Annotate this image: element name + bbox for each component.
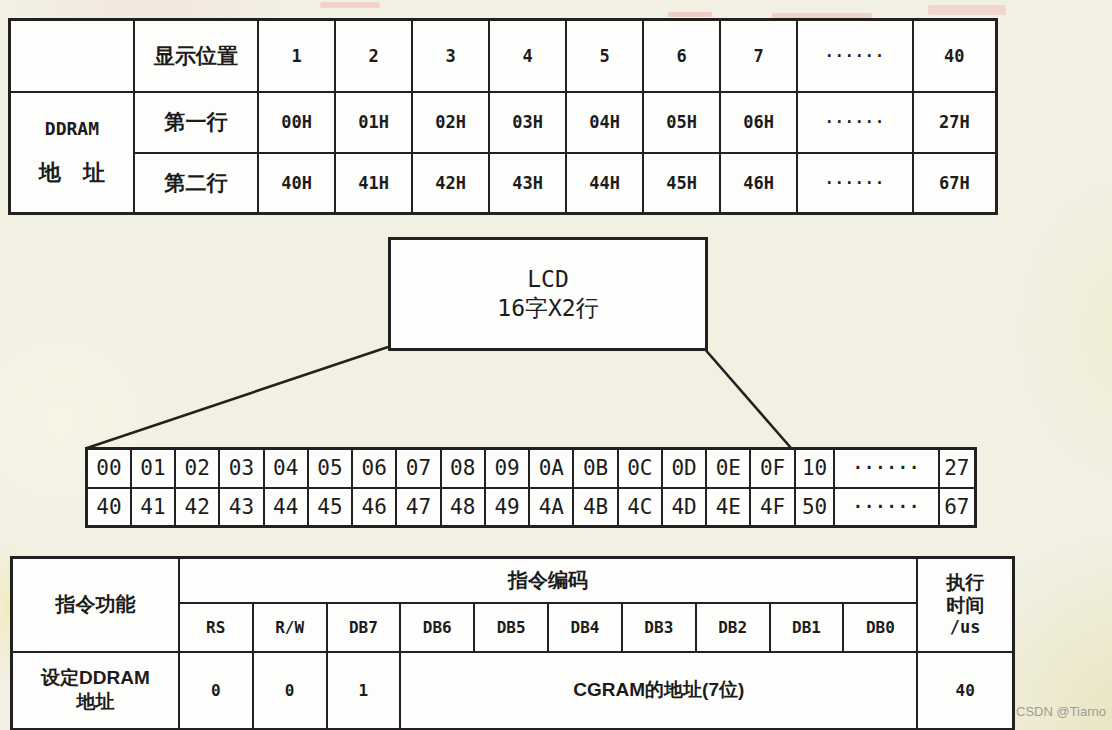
- map-cell: 00: [87, 449, 131, 488]
- map-cell: 0D: [662, 449, 706, 488]
- address-cell: 04H: [566, 92, 643, 153]
- map-cell: 49: [485, 488, 529, 527]
- map-cell: 4A: [529, 488, 573, 527]
- position-cell: 1: [258, 20, 335, 92]
- bit-header-db7: DB7: [327, 603, 401, 652]
- map-cell: 01: [131, 449, 175, 488]
- execution-time-unit: /us: [918, 617, 1012, 637]
- rw-value: 0: [253, 652, 327, 730]
- ellipsis-cell: ······: [797, 92, 912, 153]
- function-line2: 地址: [13, 690, 178, 715]
- display-position-header: 显示位置: [134, 20, 258, 92]
- left-connector-line: [87, 347, 388, 448]
- bit-header-rw: R/W: [253, 603, 327, 652]
- address-cell: 02H: [412, 92, 489, 153]
- function-line1: 设定DDRAM: [13, 666, 178, 691]
- map-cell: 06: [352, 449, 396, 488]
- right-connector-line: [703, 347, 791, 448]
- bit-header-db5: DB5: [474, 603, 548, 652]
- bit-header-db0: DB0: [843, 603, 917, 652]
- map-cell: 09: [485, 449, 529, 488]
- map-cell: 0E: [706, 449, 750, 488]
- map-cell: 03: [219, 449, 263, 488]
- execution-time-value: 40: [917, 652, 1013, 730]
- address-span-cell: CGRAM的地址(7位): [400, 652, 917, 730]
- map-cell: 02: [175, 449, 219, 488]
- instruction-function-cell: 设定DDRAM 地址: [12, 652, 179, 730]
- position-cell: 5: [566, 20, 643, 92]
- address-cell: 46H: [720, 153, 797, 214]
- map-cell: 45: [308, 488, 352, 527]
- map-cell: 4B: [573, 488, 617, 527]
- position-cell: 3: [412, 20, 489, 92]
- ddram-address-label-cell: DDRAM 地 址: [10, 92, 134, 214]
- ellipsis-cell: ······: [834, 449, 938, 488]
- lcd-box-subtitle: 16字X2行: [497, 294, 598, 323]
- address-cell: 40H: [258, 153, 335, 214]
- bit-header-rs: RS: [179, 603, 253, 652]
- rs-value: 0: [179, 652, 253, 730]
- address-cell: 67H: [913, 153, 997, 214]
- map-cell: 08: [441, 449, 485, 488]
- map-cell: 48: [441, 488, 485, 527]
- map-cell: 4D: [662, 488, 706, 527]
- address-cell: 03H: [489, 92, 566, 153]
- ellipsis-cell: ······: [834, 488, 938, 527]
- execution-time-header: 执行 时间 /us: [917, 558, 1013, 652]
- map-cell: 07: [396, 449, 440, 488]
- map-cell: 40: [87, 488, 131, 527]
- lcd-box-title: LCD: [527, 265, 569, 294]
- map-cell: 46: [352, 488, 396, 527]
- map-cell: 44: [264, 488, 308, 527]
- row1-label: 第一行: [134, 92, 258, 153]
- ddram-label: DDRAM: [11, 120, 133, 138]
- red-annotation-mark: [668, 12, 712, 17]
- map-cell: 05: [308, 449, 352, 488]
- map-cell: 42: [175, 488, 219, 527]
- map-cell: 43: [219, 488, 263, 527]
- map-cell: 47: [396, 488, 440, 527]
- ddram-address-table: 显示位置 1 2 3 4 5 6 7 ······ 40 DDRAM 地 址 第…: [8, 18, 998, 215]
- address-cell: 44H: [566, 153, 643, 214]
- map-cell: 0F: [750, 449, 794, 488]
- address-cell: 27H: [913, 92, 997, 153]
- position-cell: 2: [335, 20, 412, 92]
- position-cell: 40: [913, 20, 997, 92]
- bit-header-db6: DB6: [400, 603, 474, 652]
- map-cell: 41: [131, 488, 175, 527]
- map-cell: 67: [939, 488, 976, 527]
- map-cell: 10: [795, 449, 835, 488]
- map-cell: 0A: [529, 449, 573, 488]
- red-annotation-mark: [320, 2, 380, 8]
- ellipsis-cell: ······: [797, 20, 912, 92]
- address-cell: 00H: [258, 92, 335, 153]
- background-petal-blob: [1020, 180, 1112, 480]
- lcd-module-box: LCD 16字X2行: [388, 237, 708, 351]
- execution-time-line1: 执行: [918, 572, 1012, 595]
- bit-header-db4: DB4: [548, 603, 622, 652]
- map-cell: 27: [939, 449, 976, 488]
- address-cell: 06H: [720, 92, 797, 153]
- row2-label: 第二行: [134, 153, 258, 214]
- lcd-ddram-address-slide: 861 显示位置 1 2 3 4 5 6 7 ······ 40 DDRAM 地…: [0, 0, 1112, 730]
- map-cell: 0B: [573, 449, 617, 488]
- address-cell: 01H: [335, 92, 412, 153]
- map-cell: 4C: [618, 488, 662, 527]
- execution-time-line2: 时间: [918, 595, 1012, 618]
- address-label: 地 址: [11, 162, 133, 184]
- position-cell: 6: [643, 20, 720, 92]
- map-cell: 50: [795, 488, 835, 527]
- lcd-address-map: 00 01 02 03 04 05 06 07 08 09 0A 0B 0C 0…: [85, 447, 977, 528]
- red-annotation-mark: [928, 5, 1006, 15]
- map-cell: 4F: [750, 488, 794, 527]
- empty-corner-cell: [10, 20, 134, 92]
- bit-header-db2: DB2: [696, 603, 770, 652]
- encoding-header: 指令编码: [179, 558, 917, 603]
- map-cell: 04: [264, 449, 308, 488]
- ellipsis-cell: ······: [797, 153, 912, 214]
- address-cell: 45H: [643, 153, 720, 214]
- bit-header-db3: DB3: [622, 603, 696, 652]
- position-cell: 7: [720, 20, 797, 92]
- db7-value: 1: [327, 652, 401, 730]
- address-cell: 42H: [412, 153, 489, 214]
- function-column-header: 指令功能: [12, 558, 179, 652]
- position-cell: 4: [489, 20, 566, 92]
- map-cell: 0C: [618, 449, 662, 488]
- address-cell: 43H: [489, 153, 566, 214]
- bit-header-db1: DB1: [770, 603, 844, 652]
- address-cell: 05H: [643, 92, 720, 153]
- csdn-watermark: CSDN @Tiarno: [1016, 704, 1106, 719]
- instruction-table: 指令功能 指令编码 执行 时间 /us RS R/W DB7 DB6 DB5 D…: [10, 556, 1015, 730]
- map-cell: 4E: [706, 488, 750, 527]
- address-cell: 41H: [335, 153, 412, 214]
